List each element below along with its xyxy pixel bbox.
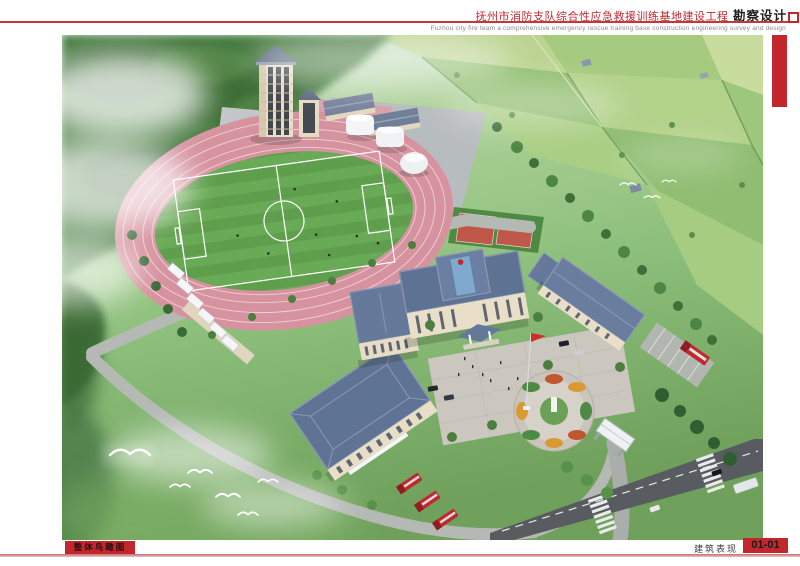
category-label: 建筑表现 bbox=[694, 542, 738, 555]
view-label-box: 整体鸟瞰图 bbox=[65, 541, 135, 554]
aerial-rendering-frame bbox=[62, 35, 763, 540]
red-accent-bar bbox=[772, 35, 787, 107]
footer-divider-line bbox=[0, 554, 800, 557]
project-subtitle-en: Fuzhou city fire team a comprehensive em… bbox=[431, 25, 786, 32]
header-end-square bbox=[788, 12, 799, 23]
monument bbox=[551, 397, 557, 412]
flower-garden bbox=[514, 371, 594, 451]
sheet-number-box: 01-01 bbox=[743, 538, 788, 553]
presentation-board: 抚州市消防支队综合性应急救援训练基地建设工程 勘察设计 Fuzhou city … bbox=[0, 0, 800, 566]
aerial-rendering bbox=[62, 35, 763, 540]
header-divider-line bbox=[0, 21, 789, 23]
